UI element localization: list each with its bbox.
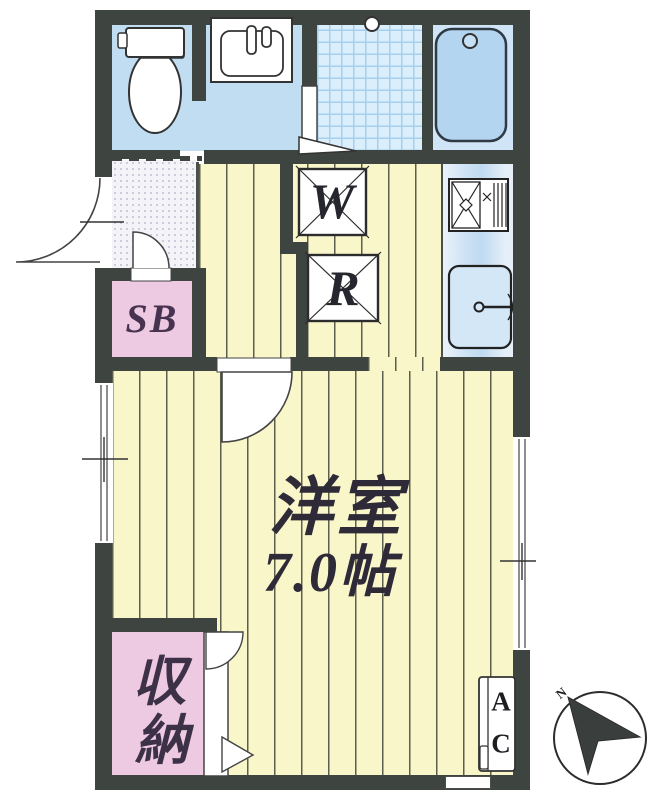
ac-label-bottom: C xyxy=(491,731,511,758)
ac-label-top: A xyxy=(491,689,511,716)
entrance-door-arc xyxy=(16,178,124,262)
main-room-size: 7.0帖 xyxy=(263,545,397,601)
fridge-label: R xyxy=(326,263,359,313)
storage-label-top: 収 xyxy=(132,655,186,709)
shoebox-label: SB xyxy=(126,299,179,339)
bathtub xyxy=(436,29,506,141)
kitchen-sink xyxy=(449,266,513,348)
fixtures-layer xyxy=(0,0,649,800)
storage-label-bottom: 納 xyxy=(135,714,189,768)
compass xyxy=(554,692,646,784)
washbasin xyxy=(211,18,292,82)
shower-door xyxy=(299,86,356,154)
toilet xyxy=(118,28,184,133)
shower-drain xyxy=(365,17,379,31)
washroom-door xyxy=(131,232,171,281)
room-door xyxy=(217,358,292,442)
floorplan: 洋室 7.0帖 W R SB 収 納 A C N xyxy=(0,0,649,800)
stove xyxy=(449,179,508,231)
main-room-name: 洋室 xyxy=(269,476,405,540)
window-right xyxy=(500,437,536,650)
washer-label: W xyxy=(310,176,354,226)
window-left xyxy=(82,383,128,543)
closet-folding-door xyxy=(204,632,253,776)
